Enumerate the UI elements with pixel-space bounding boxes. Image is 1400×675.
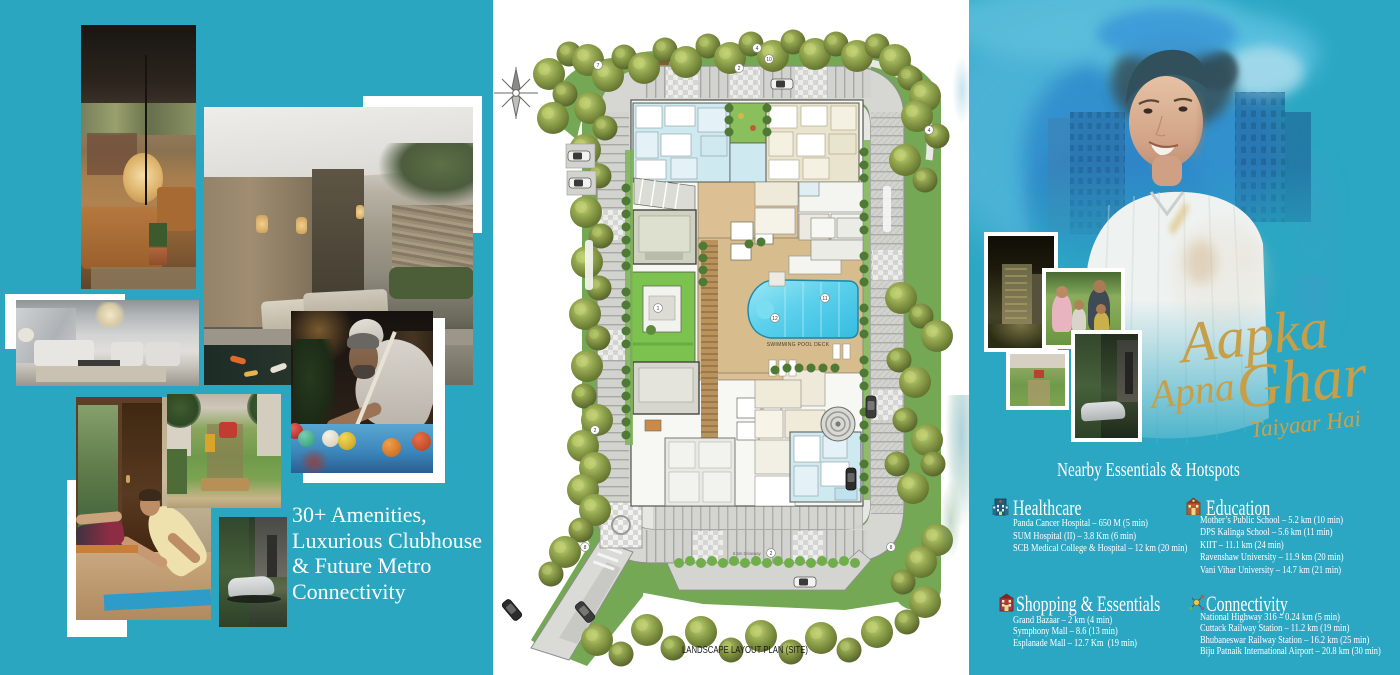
svg-text:11: 11 (822, 296, 827, 302)
svg-text:8: 8 (584, 545, 587, 551)
svg-text:4: 4 (756, 46, 759, 52)
svg-text:SWIMMING POOL DECK: SWIMMING POOL DECK (767, 342, 830, 348)
svg-text:2: 2 (738, 66, 741, 72)
svg-text:12: 12 (772, 316, 778, 322)
svg-text:2: 2 (594, 428, 597, 434)
svg-text:8: 8 (890, 545, 893, 551)
svg-text:LANDSCAPE LAYOUT PLAN (SITE): LANDSCAPE LAYOUT PLAN (SITE) (682, 644, 808, 656)
svg-text:4: 4 (928, 128, 931, 134)
svg-text:10: 10 (766, 57, 772, 63)
svg-text:1: 1 (657, 306, 660, 312)
svg-text:8.5m Driveway: 8.5m Driveway (733, 551, 762, 556)
svg-text:2: 2 (770, 551, 773, 557)
svg-text:7: 7 (597, 63, 600, 69)
